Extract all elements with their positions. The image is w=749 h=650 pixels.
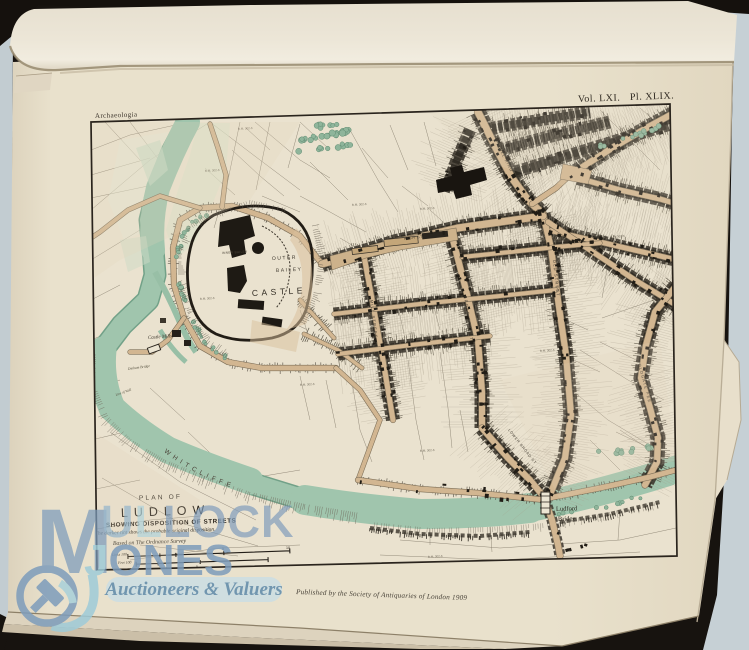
svg-text:Archaeologia: Archaeologia (95, 111, 138, 120)
svg-text:Vol. LXI.: Vol. LXI. (578, 93, 621, 105)
svg-text:Ludford: Ludford (556, 505, 578, 513)
svg-text:Auctioneers & Valuers: Auctioneers & Valuers (104, 579, 282, 600)
svg-text:Bridge: Bridge (558, 515, 576, 523)
svg-text:Pl. XLIX.: Pl. XLIX. (630, 90, 675, 103)
